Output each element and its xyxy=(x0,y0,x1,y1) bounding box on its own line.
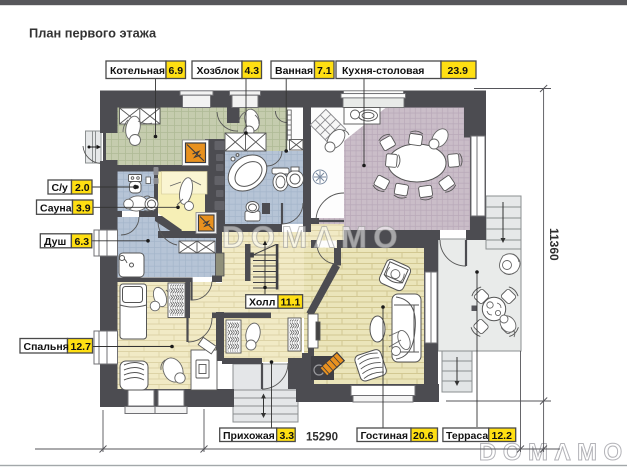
svg-text:Гостиная: Гостиная xyxy=(361,430,408,442)
svg-text:6.3: 6.3 xyxy=(75,236,90,248)
svg-text:Котельная: Котельная xyxy=(110,65,165,77)
svg-text:Спальня: Спальня xyxy=(24,341,69,353)
svg-text:15290: 15290 xyxy=(306,432,338,444)
svg-text:Ванная: Ванная xyxy=(275,65,313,77)
svg-text:Сауна: Сауна xyxy=(40,202,72,214)
svg-text:План первого этажа: План первого этажа xyxy=(29,25,157,40)
svg-text:3.9: 3.9 xyxy=(76,202,91,214)
svg-text:12.2: 12.2 xyxy=(492,430,513,442)
svg-text:12.7: 12.7 xyxy=(71,341,92,353)
svg-text:6.9: 6.9 xyxy=(169,65,184,77)
svg-text:Холл: Холл xyxy=(249,296,275,308)
svg-text:С/у: С/у xyxy=(52,182,69,194)
svg-text:3.3: 3.3 xyxy=(280,430,295,442)
svg-text:DOMΛMO: DOMΛMO xyxy=(479,439,627,466)
svg-text:20.6: 20.6 xyxy=(413,430,434,442)
svg-text:11.1: 11.1 xyxy=(281,296,301,308)
svg-text:11360: 11360 xyxy=(547,228,561,261)
svg-text:7.1: 7.1 xyxy=(317,65,332,77)
svg-text:Терраса: Терраса xyxy=(446,430,488,442)
svg-text:4.3: 4.3 xyxy=(245,65,260,77)
svg-text:23.9: 23.9 xyxy=(448,65,469,77)
svg-text:Душ: Душ xyxy=(44,236,66,248)
svg-text:Прихожая: Прихожая xyxy=(223,430,275,442)
svg-text:Хозблок: Хозблок xyxy=(197,65,240,77)
svg-text:Кухня-столовая: Кухня-столовая xyxy=(342,65,424,77)
svg-text:2.0: 2.0 xyxy=(75,182,90,194)
svg-text:DOMΛMO: DOMΛMO xyxy=(222,220,404,255)
